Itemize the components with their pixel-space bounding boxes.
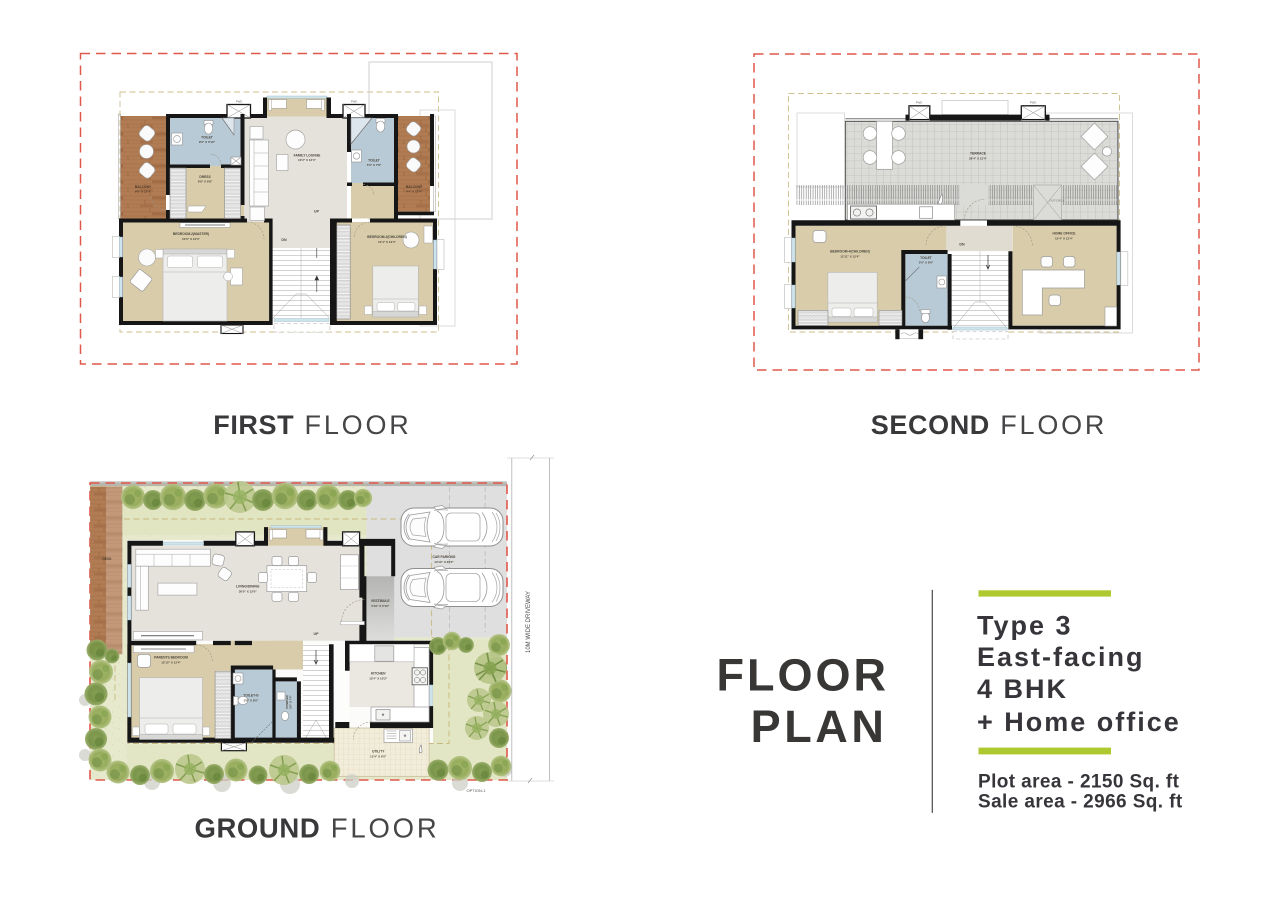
svg-text:12'4" X 6'0": 12'4" X 6'0"	[370, 755, 387, 759]
svg-text:DN: DN	[281, 238, 287, 242]
svg-text:5'0" X 8'0": 5'0" X 8'0"	[244, 699, 259, 703]
svg-text:GROUND FLOOR: GROUND FLOOR	[194, 813, 439, 844]
svg-text:PARENTS BEDROOM: PARENTS BEDROOM	[154, 656, 188, 660]
svg-text:SECOND FLOOR: SECOND FLOOR	[871, 410, 1107, 440]
svg-text:9'8" X 6'8": 9'8" X 6'8"	[198, 180, 213, 184]
svg-text:UP: UP	[314, 210, 320, 214]
svg-text:12'4" X 10'2": 12'4" X 10'2"	[369, 677, 388, 681]
svg-text:TOILET: TOILET	[368, 159, 380, 163]
svg-text:12'4" X 12'4": 12'4" X 12'4"	[1055, 237, 1074, 241]
svg-text:Plot area - 2150 Sq. ft: Plot area - 2150 Sq. ft	[978, 772, 1180, 793]
svg-text:BALCONY: BALCONY	[135, 185, 152, 189]
svg-text:2'6" X 7'4": 2'6" X 7'4"	[289, 695, 293, 709]
svg-text:10'0" X 12'4": 10'0" X 12'4"	[182, 237, 201, 241]
svg-text:PLAN: PLAN	[751, 701, 888, 752]
svg-text:5'0" X 7'8": 5'0" X 7'8"	[367, 163, 382, 167]
svg-text:14'10" X 20'2": 14'10" X 20'2"	[434, 560, 454, 564]
svg-text:TOILET-G: TOILET-G	[243, 694, 259, 698]
svg-text:10M WIDE DRIVEWAY: 10M WIDE DRIVEWAY	[526, 591, 532, 653]
svg-text:30'0" X 12'0": 30'0" X 12'0"	[239, 590, 258, 594]
svg-text:12'10" X 12'4": 12'10" X 12'4"	[161, 661, 181, 665]
svg-text:UTILITY: UTILITY	[372, 750, 385, 754]
svg-text:FAMILY LOUNGE: FAMILY LOUNGE	[294, 154, 322, 158]
svg-text:East-facing: East-facing	[977, 642, 1145, 672]
svg-text:BALCONY: BALCONY	[406, 185, 423, 189]
svg-text:DN: DN	[959, 243, 965, 247]
svg-text:28'4" X 12'4": 28'4" X 12'4"	[969, 157, 988, 161]
svg-text:12'2" X 12'4": 12'2" X 12'4"	[298, 158, 317, 162]
svg-text:9'0" X 5'10": 9'0" X 5'10"	[199, 140, 216, 144]
svg-text:12'11" X 12'4": 12'11" X 12'4"	[840, 255, 860, 259]
svg-text:4 BHK: 4 BHK	[977, 674, 1068, 704]
svg-text:KITCHEN: KITCHEN	[371, 672, 386, 676]
svg-text:UP: UP	[314, 632, 320, 636]
svg-text:TOILET: TOILET	[201, 136, 213, 140]
svg-text:VESTIBULE: VESTIBULE	[371, 599, 390, 603]
svg-text:DECK: DECK	[102, 557, 112, 561]
svg-text:TOILET: TOILET	[920, 256, 932, 260]
svg-text:OPTION-1: OPTION-1	[467, 788, 487, 793]
svg-text:Sale area - 2966 Sq. ft: Sale area - 2966 Sq. ft	[978, 791, 1183, 812]
svg-text:PWD: PWD	[1030, 101, 1037, 105]
svg-text:PWD: PWD	[351, 100, 358, 104]
svg-text:Type 3: Type 3	[977, 611, 1073, 641]
svg-text:BEDROOM-3(CHILDREN): BEDROOM-3(CHILDREN)	[367, 235, 406, 239]
svg-text:OUT-DECK: OUT-DECK	[1049, 199, 1065, 203]
svg-text:4'4" X 12'4": 4'4" X 12'4"	[406, 190, 423, 194]
svg-text:FLOOR: FLOOR	[717, 650, 889, 701]
svg-text:+ Home office: + Home office	[977, 707, 1181, 737]
svg-text:DRESS: DRESS	[199, 175, 211, 179]
svg-text:FIRST FLOOR: FIRST FLOOR	[213, 410, 411, 440]
svg-text:HOME OFFICE: HOME OFFICE	[1053, 232, 1077, 236]
svg-text:BEDROOM-4(CHILDREN): BEDROOM-4(CHILDREN)	[830, 250, 869, 254]
svg-text:5'0" X 8'6": 5'0" X 8'6"	[919, 261, 934, 265]
svg-text:BEDROOM-2(MASTER): BEDROOM-2(MASTER)	[173, 232, 209, 236]
svg-text:9'8" X 12'4": 9'8" X 12'4"	[135, 190, 152, 194]
svg-text:12'4" X 12'4": 12'4" X 12'4"	[378, 240, 397, 244]
svg-text:5'10" X 5'10": 5'10" X 5'10"	[371, 604, 390, 608]
svg-text:TERRACE: TERRACE	[970, 152, 987, 156]
svg-text:PWD: PWD	[236, 100, 243, 104]
svg-text:PWD: PWD	[916, 101, 923, 105]
svg-text:LIVING/DINING: LIVING/DINING	[236, 585, 260, 589]
svg-text:CAR PARKING: CAR PARKING	[432, 555, 455, 559]
